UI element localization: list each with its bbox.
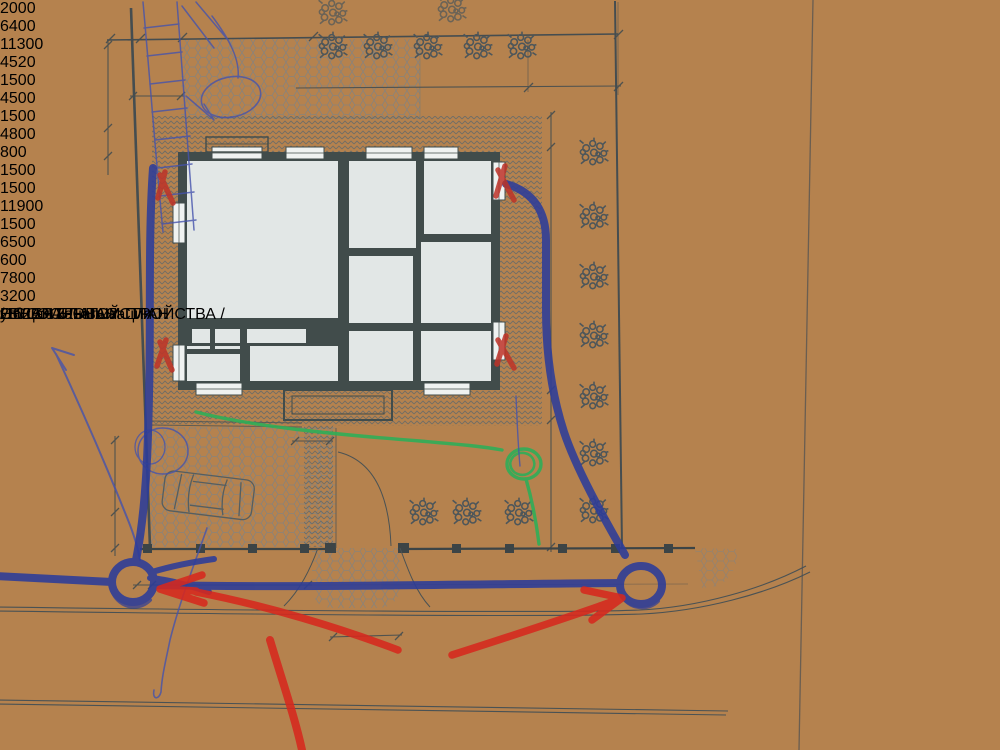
blue-pen-arrow [52,348,140,560]
site-plan-drawing [0,0,1000,750]
trees-row-bottom [410,498,534,525]
hex-paving-street-apron [312,548,400,608]
sewer-main [154,583,620,586]
photo-of-site-plan: 2000 6400 11300 4520 1500 4500 1500 4800… [0,0,1000,750]
trees-column-right [580,138,609,523]
red-arrow-right [452,590,622,655]
red-flourish-stroke [270,640,302,750]
sewer-main-left [0,576,112,582]
hex-paving-driveway [150,427,737,608]
herringbone-walkway [304,426,333,547]
house-plan [173,137,505,420]
hex-paving-corner [695,548,737,588]
camera-timestamp: 28 23:07 [0,306,62,324]
drawing-frame-border [799,0,813,750]
path-arc [338,452,391,546]
